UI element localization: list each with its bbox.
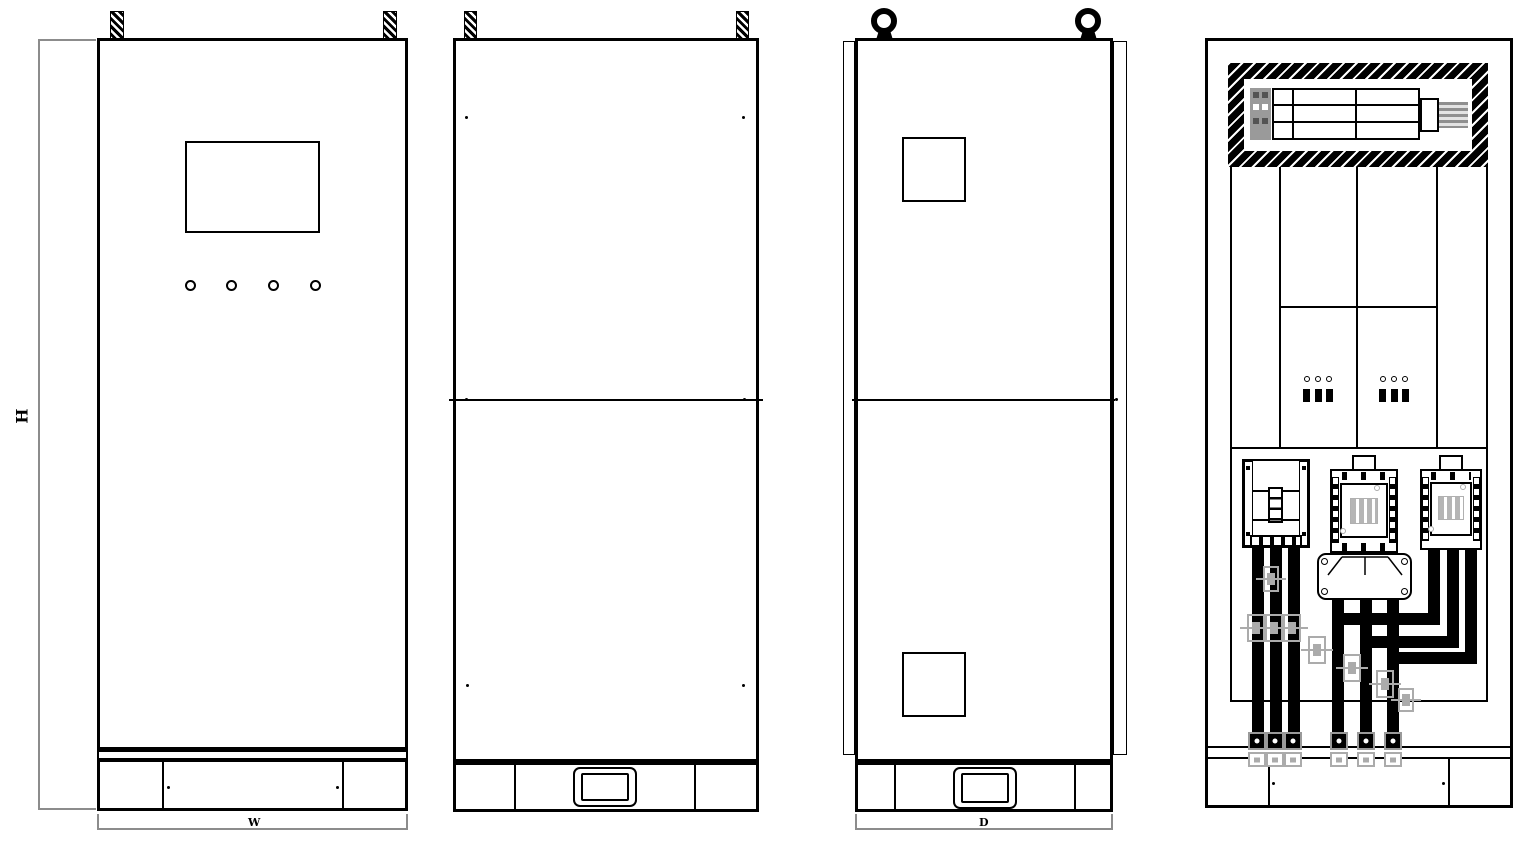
terminal-lug-ghost: [1266, 752, 1284, 767]
split-tick: [465, 398, 468, 401]
fitting-hole: [1402, 376, 1408, 382]
screw-dot: [167, 786, 170, 789]
terminal-lug: [1248, 732, 1266, 750]
plinth-divider: [1448, 758, 1450, 806]
door-handle-inner: [961, 773, 1009, 803]
cable-clamp-ghost: [1343, 654, 1361, 682]
busbar: [1288, 546, 1300, 738]
depth-dimension-ext: [855, 814, 857, 830]
indicator-light: [226, 280, 237, 291]
panel-split-line: [449, 399, 763, 401]
plinth-divider: [514, 764, 516, 810]
plinth-divider: [894, 764, 896, 810]
busbar: [1447, 548, 1459, 648]
terminal-lug-ghost: [1248, 752, 1266, 767]
busbar-chamber-row: [1274, 121, 1418, 123]
fitting-slot: [1303, 389, 1310, 402]
door-fitting: [1304, 376, 1332, 383]
screw-dot: [465, 116, 468, 119]
plinth-divider: [1074, 764, 1076, 810]
frame-upright: [1230, 167, 1232, 448]
cable-clamp-ghost: [1376, 670, 1394, 698]
contactor-screw-ghost: [1428, 526, 1434, 532]
contactor-flange: [1473, 477, 1480, 541]
plate-screw: [1401, 558, 1408, 565]
fitting-slot: [1315, 389, 1322, 402]
terminal-lug-ghost: [1284, 752, 1302, 767]
starter-flange: [1332, 477, 1339, 543]
plate-trapezoid-lines: [1326, 555, 1404, 577]
fitting-hole: [1391, 376, 1397, 382]
starter-label-ghost: [1350, 498, 1378, 524]
busbar-chamber-row: [1274, 104, 1418, 106]
door-fitting: [1303, 389, 1333, 402]
width-dimension-ext: [97, 814, 99, 830]
indicator-light: [268, 280, 279, 291]
incoming-connector: [1439, 102, 1468, 128]
plinth-divider: [694, 764, 696, 810]
screw-dot: [466, 684, 469, 687]
cable-clamp-ghost: [1308, 636, 1326, 664]
breaker-screw: [1302, 532, 1306, 536]
screw-dot: [742, 684, 745, 687]
starter-top-posts: [1342, 472, 1386, 480]
terminal-lug: [1266, 732, 1284, 750]
meter-terminal-block: [1250, 88, 1271, 140]
starter-screw-ghost: [1340, 528, 1346, 534]
breaker-toggle: [1268, 487, 1283, 523]
plinth-divider: [162, 761, 164, 809]
breaker-screw: [1246, 466, 1250, 470]
lifting-tab-icon: [464, 11, 477, 41]
starter-bottom-posts: [1342, 543, 1386, 551]
plate-screw: [1321, 558, 1328, 565]
contactor-top-posts: [1431, 472, 1471, 480]
door-fitting: [1380, 376, 1408, 383]
breaker-screw: [1302, 466, 1306, 470]
height-dimension-label: H: [15, 406, 31, 425]
fitting-hole: [1326, 376, 1332, 382]
width-dimension-label: W: [246, 817, 262, 828]
display-panel: [185, 141, 320, 233]
fitting-hole: [1315, 376, 1321, 382]
terminal-lug-ghost: [1330, 752, 1348, 767]
plinth: [97, 759, 408, 811]
side-rail: [843, 41, 855, 755]
busbar-link: [1391, 652, 1477, 664]
fitting-slot: [1402, 389, 1409, 402]
door-fitting: [1379, 389, 1409, 402]
indicator-light: [310, 280, 321, 291]
fitting-hole: [1304, 376, 1310, 382]
terminal-lug: [1284, 732, 1302, 750]
cabinet-technical-drawing: H W: [0, 0, 1536, 846]
plinth-divider: [342, 761, 344, 809]
door-handle-inner: [581, 773, 629, 801]
indicator-light: [185, 280, 196, 291]
busbar-link: [1364, 636, 1459, 648]
fitting-hole: [1380, 376, 1386, 382]
split-tick: [743, 398, 746, 401]
busbar: [1465, 548, 1477, 664]
terminal-lug: [1384, 732, 1402, 750]
frame-upright: [1486, 167, 1488, 448]
screw-dot: [742, 116, 745, 119]
busbar-chamber: [1272, 88, 1420, 140]
lifting-tab-icon: [736, 11, 749, 41]
terminal-lug-ghost: [1357, 752, 1375, 767]
split-tick: [1115, 398, 1118, 401]
cable-clamp-ghost: [1398, 688, 1414, 712]
fitting-slot: [1391, 389, 1398, 402]
contactor-screw-ghost: [1460, 484, 1466, 490]
depth-dimension-ext: [1111, 814, 1113, 830]
screw-dot: [1442, 782, 1445, 785]
bay-shelf-line: [1280, 306, 1437, 308]
lifting-tab-icon: [110, 11, 124, 41]
terminal-lug: [1357, 732, 1375, 750]
terminal-lug: [1330, 732, 1348, 750]
starter-screw-ghost: [1374, 485, 1380, 491]
busbar-chamber-col: [1355, 90, 1357, 138]
vent-cutout: [902, 652, 966, 717]
contactor-label-ghost: [1438, 496, 1464, 520]
panel-split-line: [852, 399, 1115, 401]
plate-screw: [1321, 588, 1328, 595]
screw-dot: [1272, 782, 1275, 785]
starter-flange: [1389, 477, 1396, 543]
screw-dot: [336, 786, 339, 789]
busbar-chamber-step: [1420, 98, 1439, 132]
cable-clamp-ghost: [1283, 614, 1301, 642]
vent-cutout: [902, 137, 966, 202]
lifting-tab-icon: [383, 11, 397, 41]
fitting-slot: [1379, 389, 1386, 402]
busbar-link: [1336, 613, 1440, 625]
busbar-chamber-col: [1292, 90, 1294, 138]
height-dimension-line: [38, 39, 40, 810]
width-dimension-ext: [406, 814, 408, 830]
cable-clamp-ghost: [1263, 566, 1279, 592]
terminal-lug-ghost: [1384, 752, 1402, 767]
height-dimension-tick: [38, 808, 96, 810]
contactor-flange: [1422, 477, 1429, 541]
plate-screw: [1401, 588, 1408, 595]
fitting-slot: [1326, 389, 1333, 402]
height-dimension-tick: [38, 39, 96, 41]
depth-dimension-label: D: [977, 817, 991, 828]
